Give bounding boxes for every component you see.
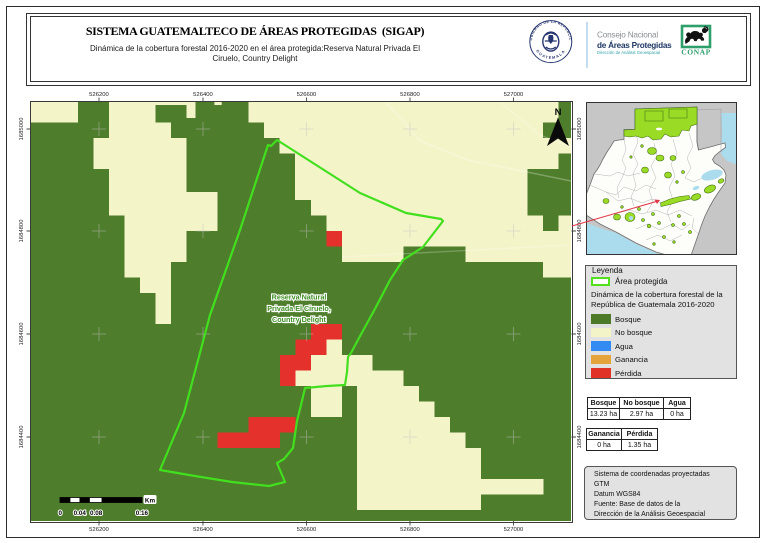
svg-text:Consejo Nacional: Consejo Nacional [597,31,658,40]
svg-text:1684400: 1684400 [19,425,25,449]
svg-text:527000: 527000 [504,92,524,98]
svg-text:Country Delight: Country Delight [272,315,327,324]
svg-text:526400: 526400 [193,92,213,98]
svg-text:526600: 526600 [297,92,317,98]
svg-text:Reserva Natural: Reserva Natural [272,293,327,302]
svg-text:1684600: 1684600 [577,322,583,346]
svg-text:Km: Km [145,498,156,505]
svg-text:526800: 526800 [400,92,420,98]
svg-text:N: N [555,107,562,118]
svg-text:1684800: 1684800 [19,219,25,243]
svg-text:1684400: 1684400 [577,425,583,449]
svg-text:de Áreas Protegidas: de Áreas Protegidas [597,40,672,50]
svg-text:1685000: 1685000 [19,117,25,141]
svg-text:Dirección de Análisis Geoespac: Dirección de Análisis Geoespacial [597,50,660,55]
svg-text:1684600: 1684600 [19,322,25,346]
svg-text:0: 0 [58,510,62,517]
svg-text:527000: 527000 [504,527,524,533]
svg-text:526400: 526400 [193,527,213,533]
svg-text:526200: 526200 [89,527,109,533]
svg-text:526600: 526600 [297,527,317,533]
svg-text:0.04: 0.04 [74,510,87,517]
svg-text:0.16: 0.16 [136,510,149,517]
svg-text:0.08: 0.08 [90,510,103,517]
svg-text:526800: 526800 [400,527,420,533]
svg-text:Privada El Ciruelo,: Privada El Ciruelo, [267,304,331,313]
svg-text:1685000: 1685000 [577,117,583,141]
svg-text:CONAP: CONAP [681,48,711,57]
svg-text:526200: 526200 [89,92,109,98]
